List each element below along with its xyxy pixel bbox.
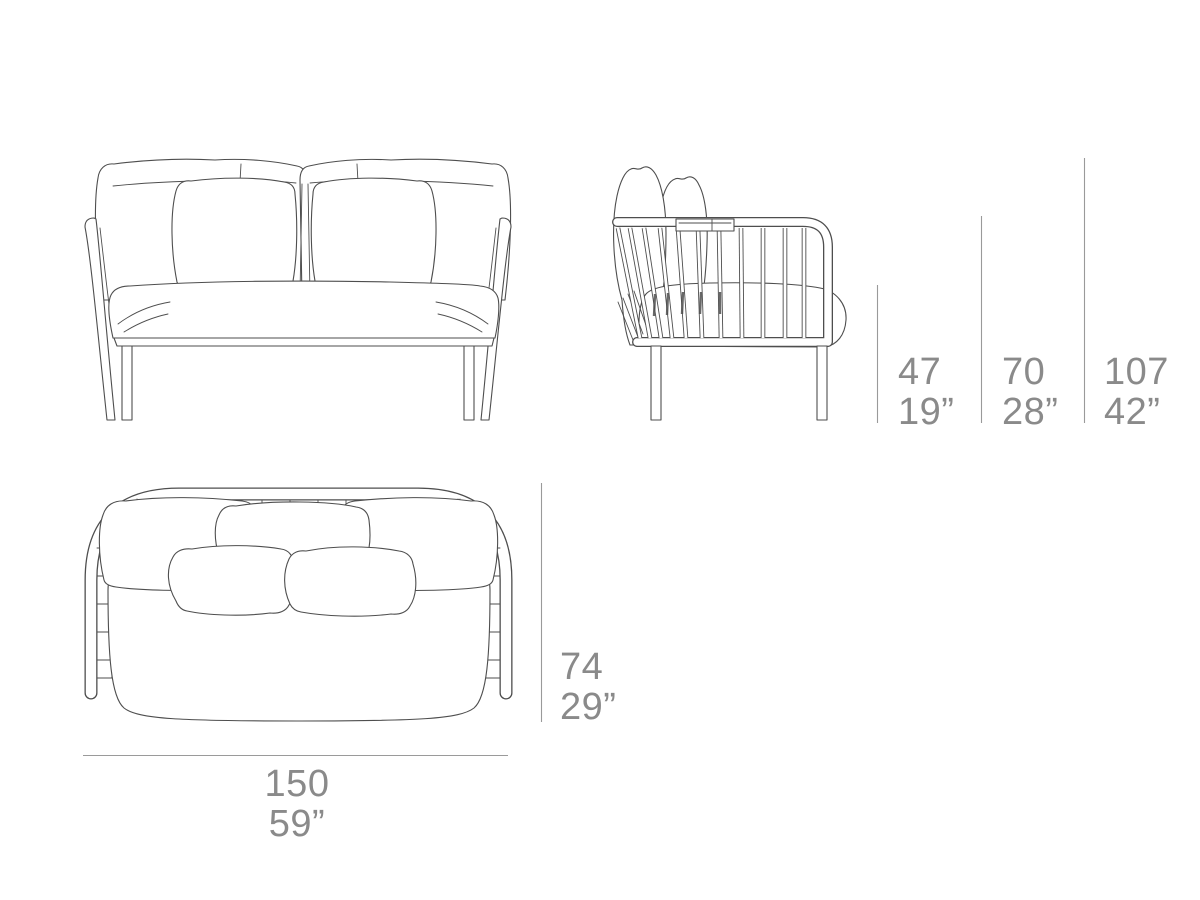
dimension-seat-height: 47 19”	[878, 285, 955, 433]
front-seat-cushion	[109, 281, 499, 338]
width-cm: 150	[265, 763, 330, 805]
top-view	[91, 494, 506, 721]
pillow-right	[311, 178, 436, 292]
front-leg-left	[122, 346, 132, 420]
seat-height-cm: 47	[898, 351, 941, 393]
front-view	[85, 159, 511, 420]
width-in: 59”	[269, 803, 325, 845]
total-height-in: 42”	[1104, 391, 1160, 433]
front-base	[114, 338, 494, 420]
side-legs	[651, 346, 827, 420]
side-leg-right	[817, 346, 827, 420]
top-pillows	[168, 546, 415, 617]
dimension-arm-height: 70 28”	[982, 216, 1059, 433]
pillow-left	[172, 178, 297, 292]
side-leg-left	[651, 346, 661, 420]
top-pillow-right	[285, 547, 416, 616]
top-pillow-left	[168, 546, 295, 616]
side-rail-clamp	[676, 219, 734, 231]
depth-cm: 74	[560, 646, 603, 688]
dimension-total-height: 107 42”	[1085, 158, 1169, 433]
depth-in: 29”	[560, 686, 616, 728]
front-leg-right	[464, 346, 474, 420]
side-view	[614, 167, 846, 420]
arm-height-in: 28”	[1002, 391, 1058, 433]
arm-height-cm: 70	[1002, 351, 1045, 393]
front-seat-rail	[114, 338, 494, 346]
front-back-cushions	[95, 159, 510, 300]
dimension-depth: 74 29”	[542, 483, 617, 728]
seat-height-in: 19”	[898, 391, 954, 433]
dimension-width: 150 59”	[83, 756, 508, 846]
technical-drawing-page: 47 19” 70 28” 107 42” 74 29” 150 59”	[0, 0, 1200, 900]
total-height-cm: 107	[1104, 351, 1169, 393]
sofa-dimension-diagram: 47 19” 70 28” 107 42” 74 29” 150 59”	[0, 0, 1200, 900]
